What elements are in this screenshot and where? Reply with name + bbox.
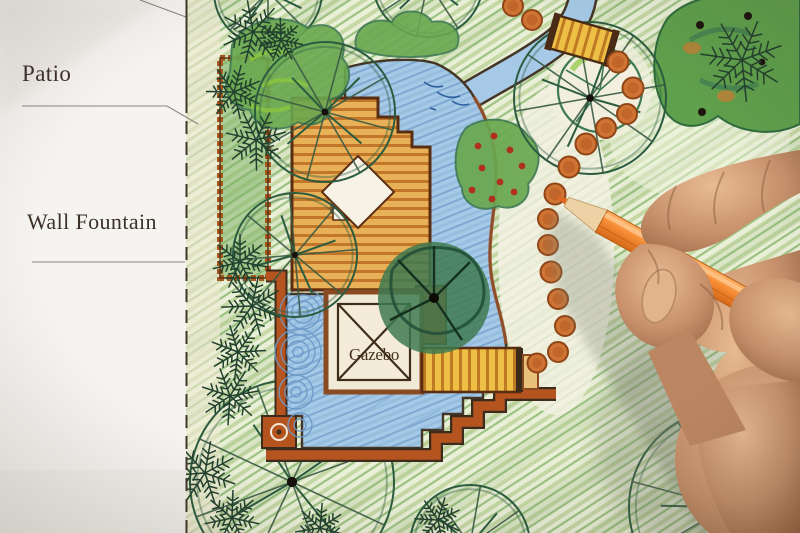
garden-plan-drawing [0,0,800,533]
label-wall-fountain: Wall Fountain [27,211,157,233]
photo-vignette [0,0,800,533]
label-patio: Patio [22,62,71,85]
label-gazebo: Gazebo [332,346,416,363]
photo-of-garden-plan: Patio Wall Fountain Gazebo [0,0,800,533]
